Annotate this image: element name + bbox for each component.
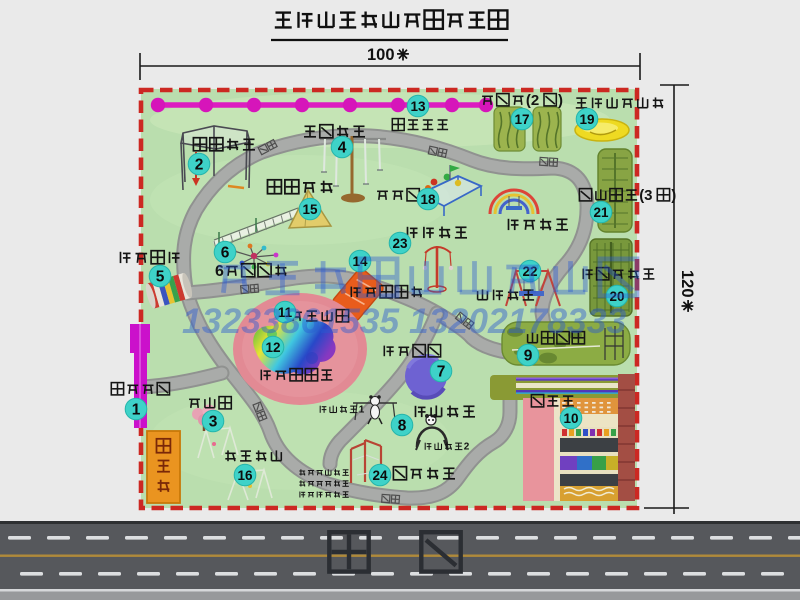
svg-text:4: 4 bbox=[338, 140, 347, 157]
svg-text:2: 2 bbox=[464, 442, 470, 453]
svg-text:24: 24 bbox=[372, 468, 388, 483]
svg-text:7: 7 bbox=[437, 364, 446, 381]
svg-text:5: 5 bbox=[156, 269, 165, 286]
svg-text:21: 21 bbox=[593, 205, 609, 220]
svg-text:120: 120 bbox=[678, 270, 696, 298]
svg-text:19: 19 bbox=[579, 112, 594, 127]
svg-text:100: 100 bbox=[367, 46, 395, 64]
svg-text:): ) bbox=[671, 187, 676, 204]
svg-text:17: 17 bbox=[514, 112, 529, 127]
svg-text:16: 16 bbox=[237, 468, 253, 483]
svg-text:13: 13 bbox=[410, 99, 426, 114]
svg-text:(2: (2 bbox=[526, 92, 539, 109]
svg-text:12: 12 bbox=[265, 340, 280, 355]
svg-text:13233861535 13202178333: 13233861535 13202178333 bbox=[182, 301, 626, 341]
svg-text:8: 8 bbox=[398, 418, 407, 435]
svg-text:2: 2 bbox=[195, 157, 204, 174]
svg-text:15: 15 bbox=[302, 202, 318, 217]
svg-text:10: 10 bbox=[563, 411, 578, 426]
svg-text:1: 1 bbox=[359, 405, 365, 416]
svg-text:23: 23 bbox=[392, 236, 408, 251]
svg-text:9: 9 bbox=[524, 348, 533, 365]
svg-text:(3: (3 bbox=[639, 187, 652, 204]
svg-text:6: 6 bbox=[221, 245, 230, 262]
svg-text:18: 18 bbox=[420, 192, 436, 207]
svg-text:): ) bbox=[558, 92, 563, 109]
svg-text:3: 3 bbox=[209, 414, 218, 431]
svg-text:1: 1 bbox=[132, 402, 141, 419]
